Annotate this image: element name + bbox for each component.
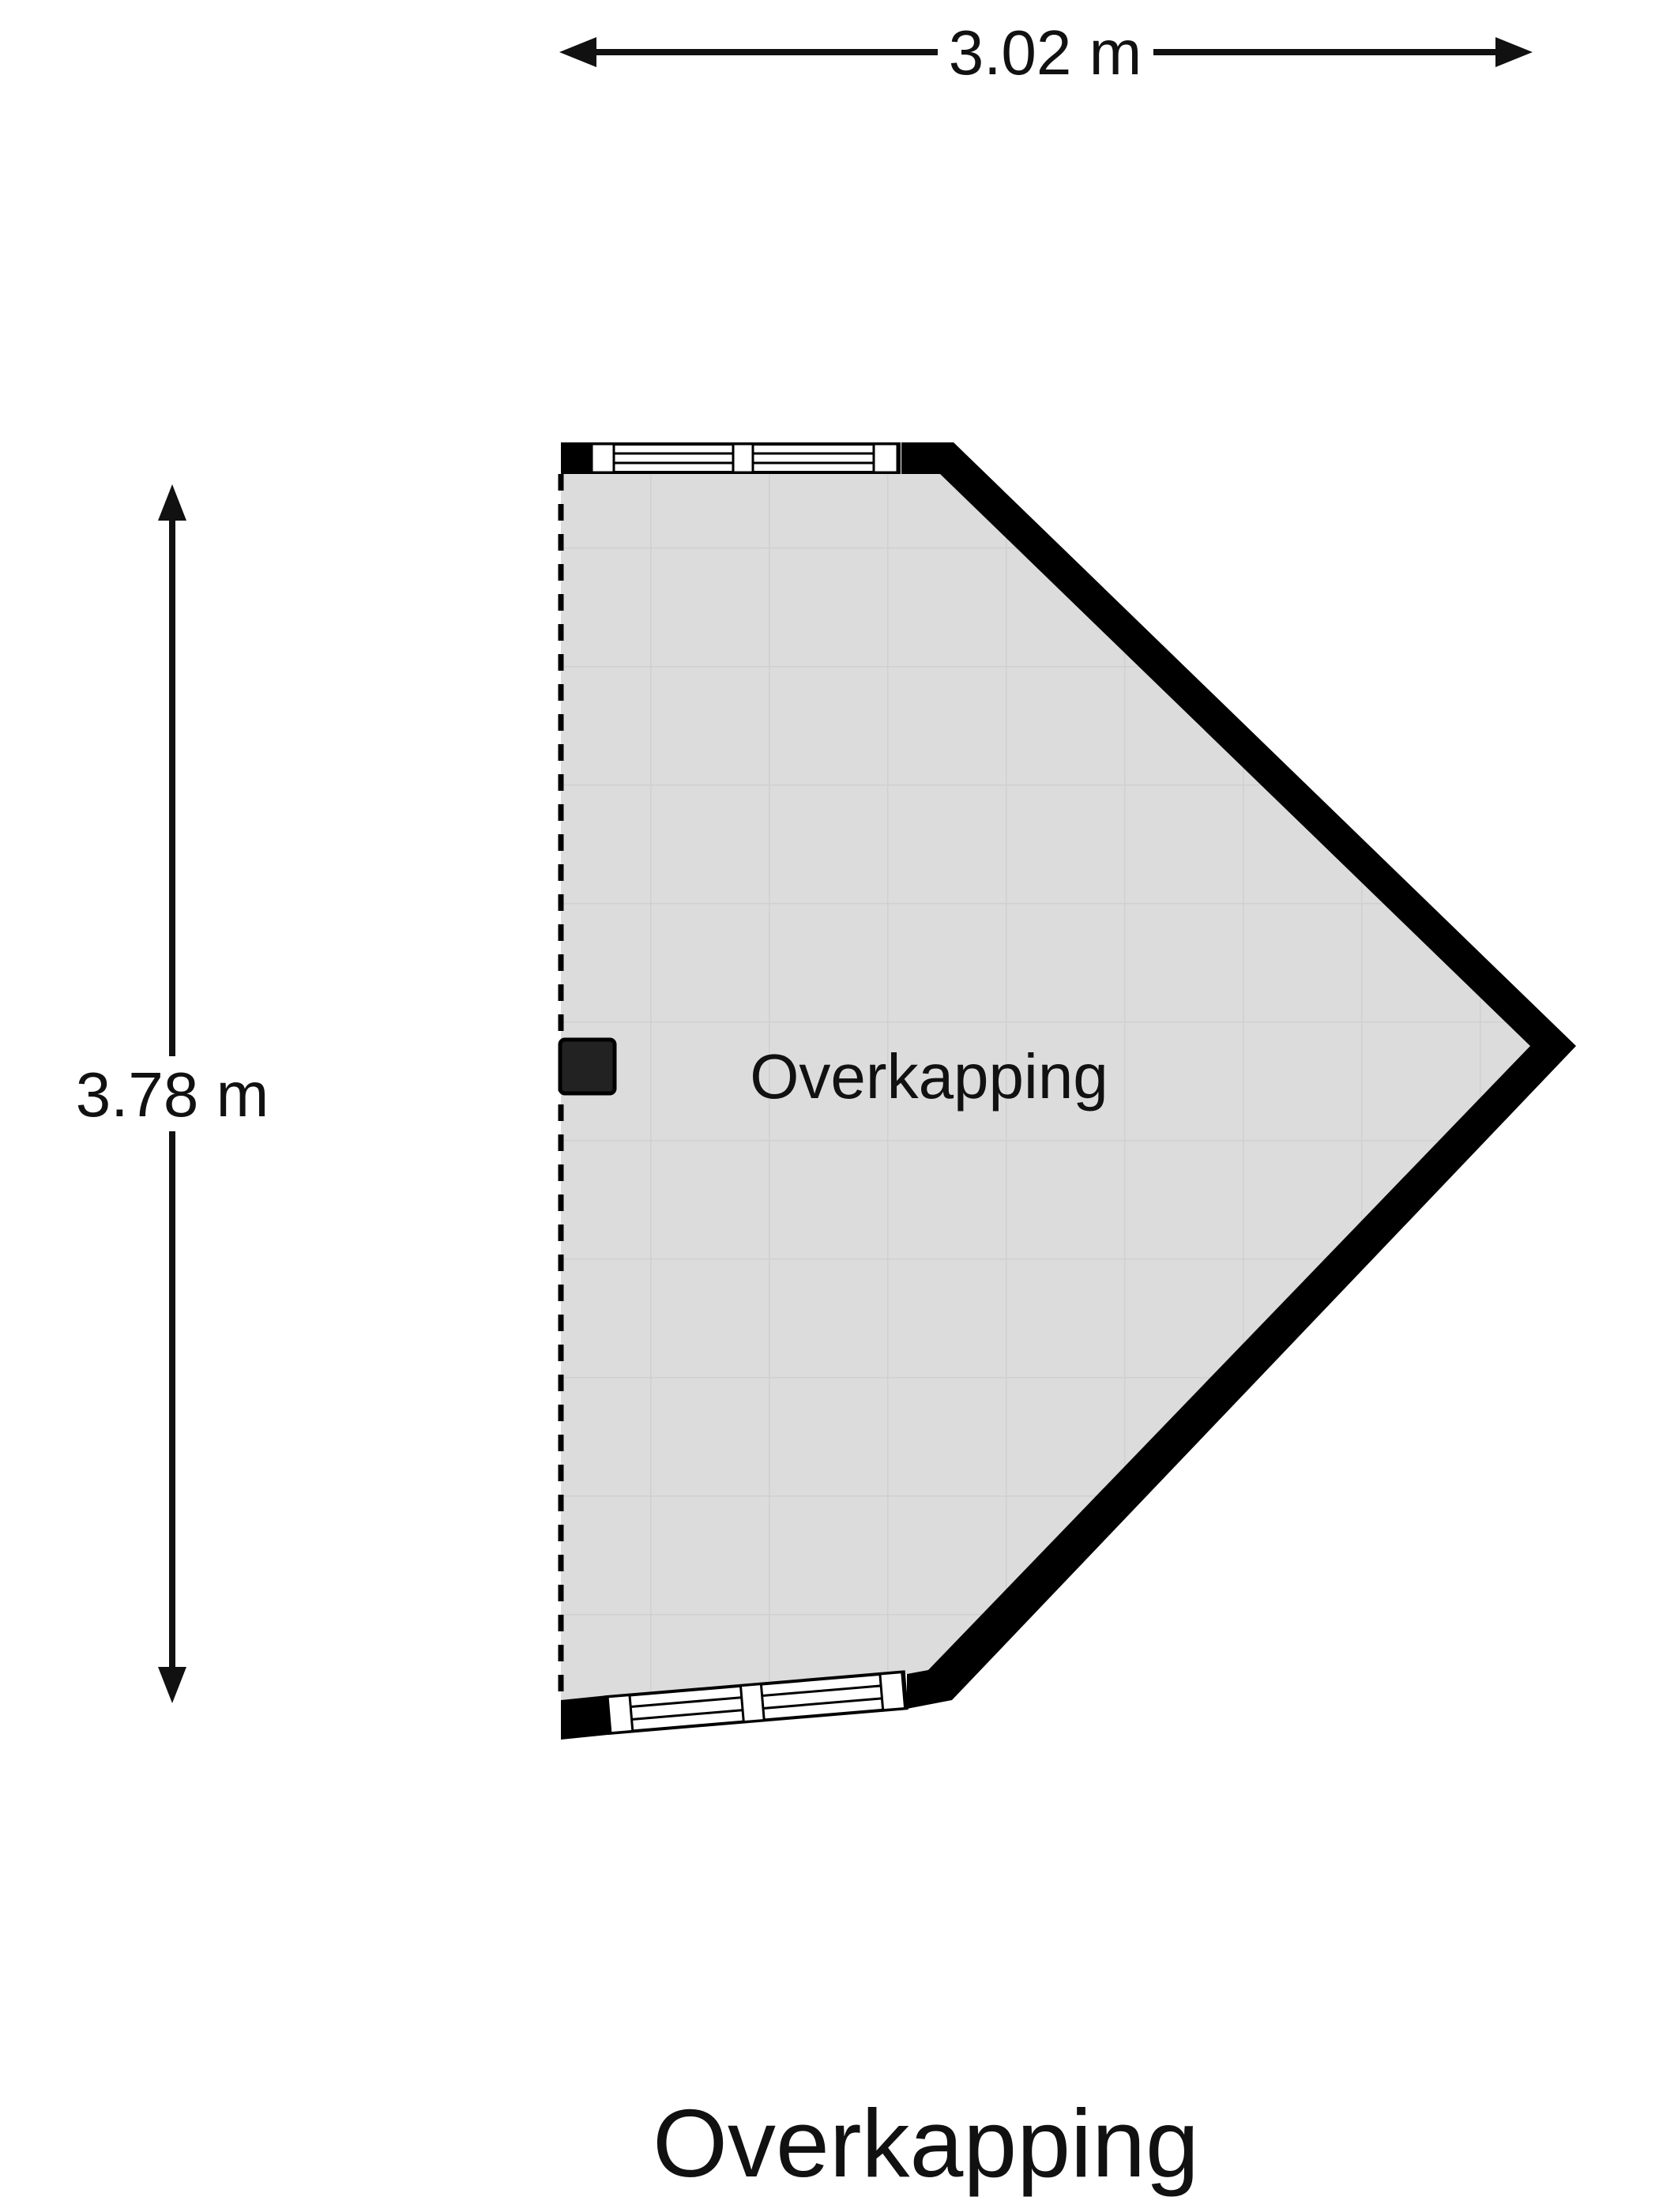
window-top-mullion <box>592 444 614 472</box>
window-bottom-mullion <box>880 1672 905 1710</box>
support-post <box>560 1040 615 1093</box>
window-bottom-mullion <box>608 1695 633 1733</box>
corner-post-bottom-left <box>561 1695 608 1740</box>
window-top-mullion <box>733 444 753 472</box>
plan-title: Overkapping <box>653 2095 1199 2191</box>
corner-post-top-left <box>561 442 591 474</box>
window-top-mullion <box>874 444 897 472</box>
window-bottom-mullion <box>740 1684 764 1722</box>
room-label: Overkapping <box>750 1045 1108 1108</box>
window-top <box>590 444 899 472</box>
